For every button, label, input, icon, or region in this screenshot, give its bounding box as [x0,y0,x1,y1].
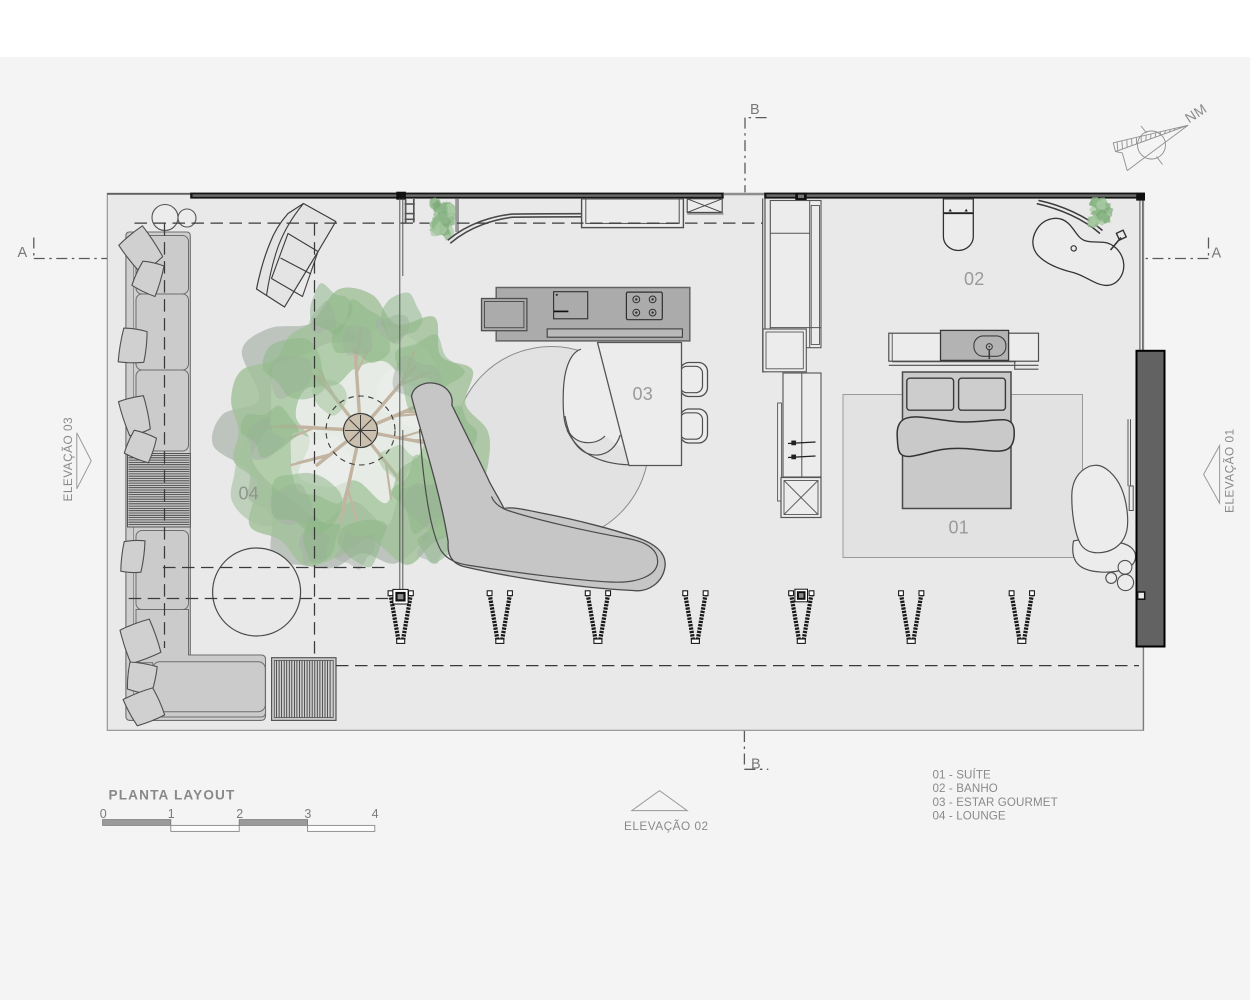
svg-text:02: 02 [964,269,985,289]
svg-text:ELEVAÇÃO 03: ELEVAÇÃO 03 [61,417,75,502]
svg-text:03 - ESTAR GOURMET: 03 - ESTAR GOURMET [933,796,1058,809]
svg-text:0: 0 [100,807,107,821]
svg-text:1: 1 [168,807,175,821]
svg-text:A: A [18,245,28,261]
svg-text:B: B [751,757,761,773]
svg-text:ELEVAÇÃO 02: ELEVAÇÃO 02 [624,819,709,833]
svg-text:B: B [750,102,760,118]
svg-text:A: A [1212,246,1222,262]
svg-text:3: 3 [304,807,311,821]
svg-text:01: 01 [949,518,970,538]
svg-text:03: 03 [633,384,654,404]
svg-text:2: 2 [236,807,243,821]
svg-text:02 - BANHO: 02 - BANHO [933,782,998,795]
svg-text:PLANTA LAYOUT: PLANTA LAYOUT [109,787,236,802]
svg-text:ELEVAÇÃO 01: ELEVAÇÃO 01 [1223,428,1237,513]
svg-text:04 - LOUNGE: 04 - LOUNGE [933,810,1006,823]
svg-text:01 - SUÍTE: 01 - SUÍTE [933,769,992,782]
svg-text:04: 04 [239,484,260,504]
svg-text:4: 4 [372,807,379,821]
